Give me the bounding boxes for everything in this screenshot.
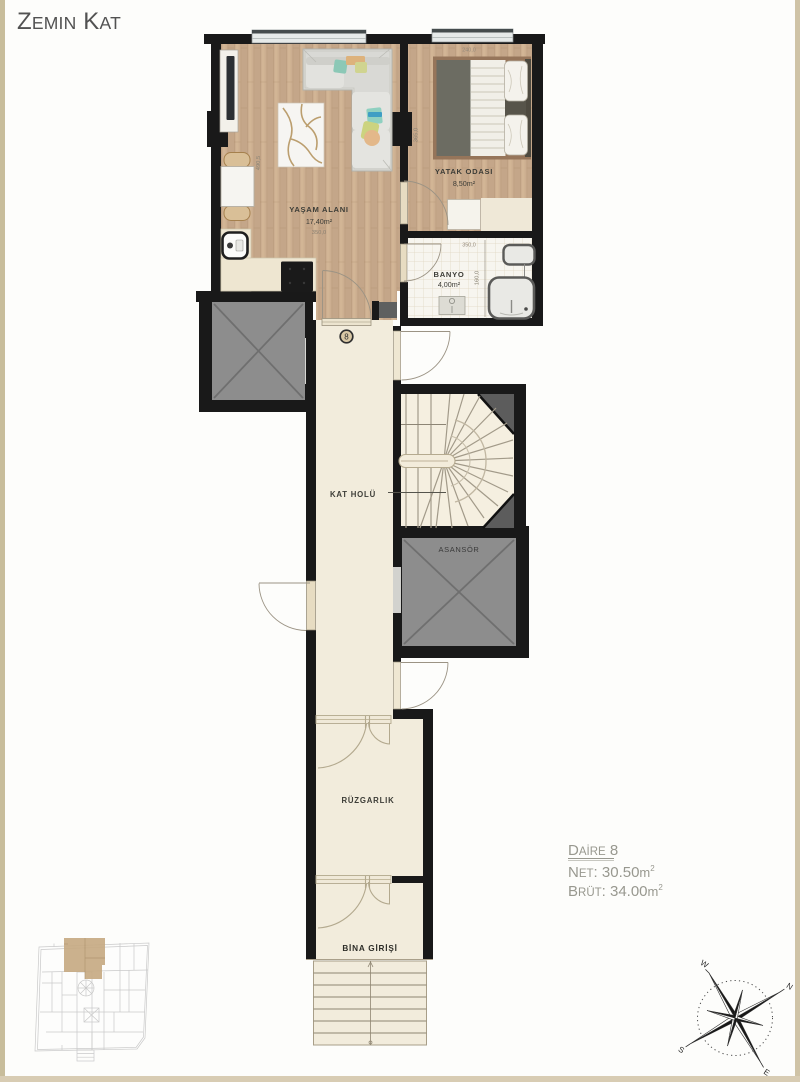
svg-text:350,0: 350,0: [312, 230, 327, 236]
svg-text:240,0: 240,0: [462, 48, 476, 54]
svg-text:BANYO: BANYO: [434, 270, 465, 279]
svg-text:KAT HOLÜ: KAT HOLÜ: [330, 490, 376, 499]
svg-text:490,5: 490,5: [256, 156, 262, 171]
svg-text:8: 8: [344, 333, 349, 342]
svg-text:350,0: 350,0: [462, 243, 476, 249]
svg-text:8,50m²: 8,50m²: [453, 179, 476, 188]
svg-text:BİNA GİRİŞİ: BİNA GİRİŞİ: [342, 943, 397, 953]
svg-text:ZEMIN KAT: ZEMIN KAT: [17, 8, 121, 35]
svg-text:17,40m²: 17,40m²: [306, 217, 333, 226]
svg-text:ASANSÖR: ASANSÖR: [439, 545, 480, 554]
svg-text:4,00m²: 4,00m²: [438, 280, 461, 289]
svg-text:160,0: 160,0: [475, 271, 481, 286]
svg-text:365,0: 365,0: [414, 128, 420, 143]
svg-text:YAŞAM ALANI: YAŞAM ALANI: [289, 205, 348, 214]
svg-text:YATAK ODASI: YATAK ODASI: [435, 167, 493, 176]
svg-text:RÜZGARLIK: RÜZGARLIK: [341, 796, 394, 805]
